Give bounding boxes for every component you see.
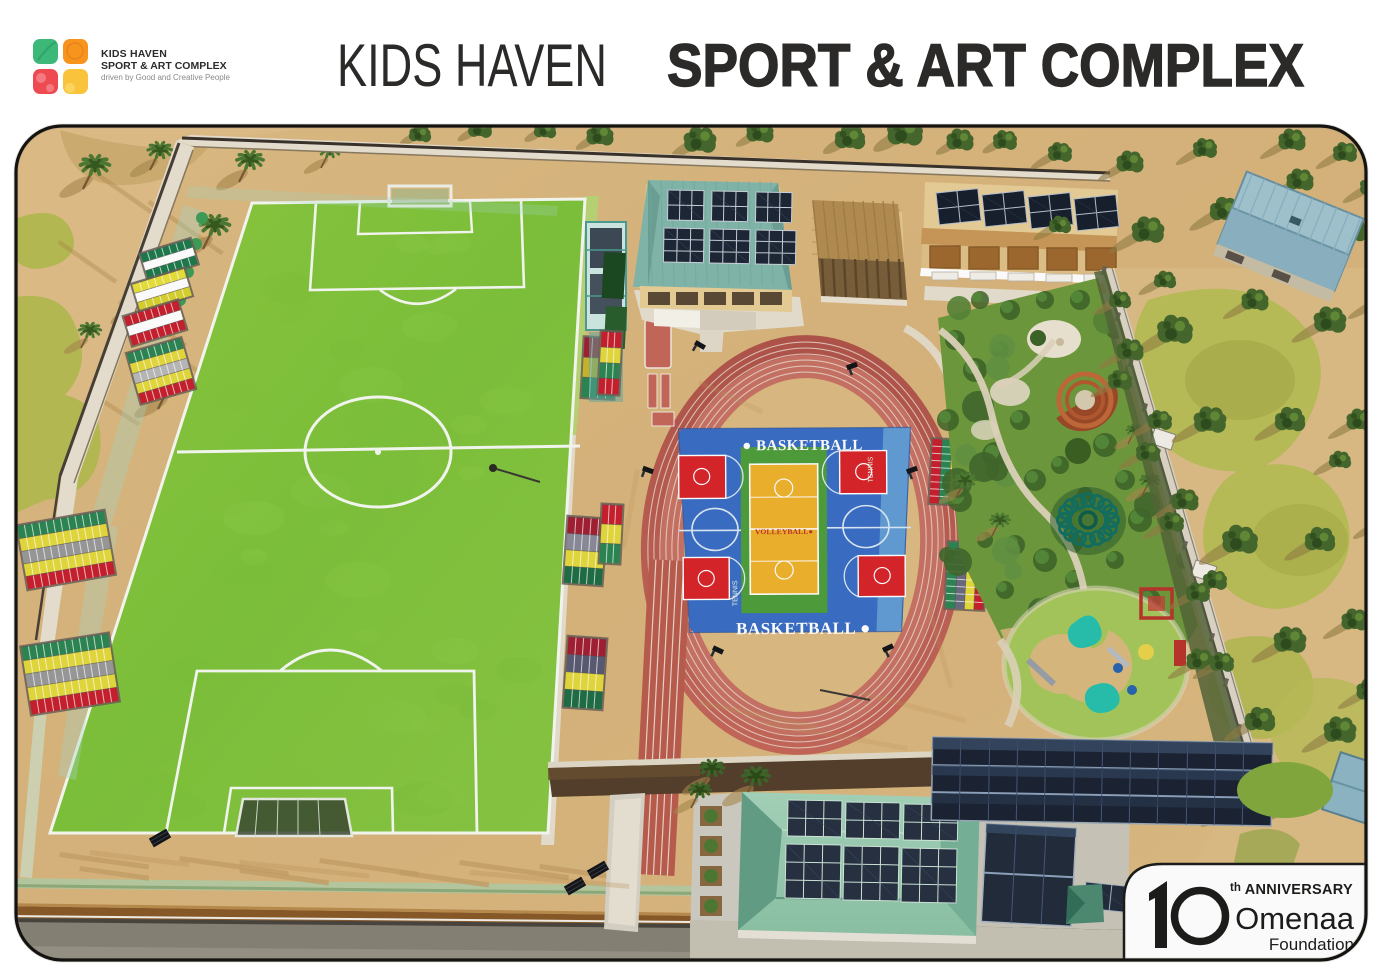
svg-text:SPORT & ART COMPLEX: SPORT & ART COMPLEX <box>667 32 1304 99</box>
svg-text:KIDS HAVEN: KIDS HAVEN <box>101 48 167 60</box>
svg-text:KIDS HAVEN: KIDS HAVEN <box>337 32 607 99</box>
svg-text:driven by Good and Creative Pe: driven by Good and Creative People <box>101 73 231 82</box>
svg-text:SPORT & ART COMPLEX: SPORT & ART COMPLEX <box>101 60 227 72</box>
